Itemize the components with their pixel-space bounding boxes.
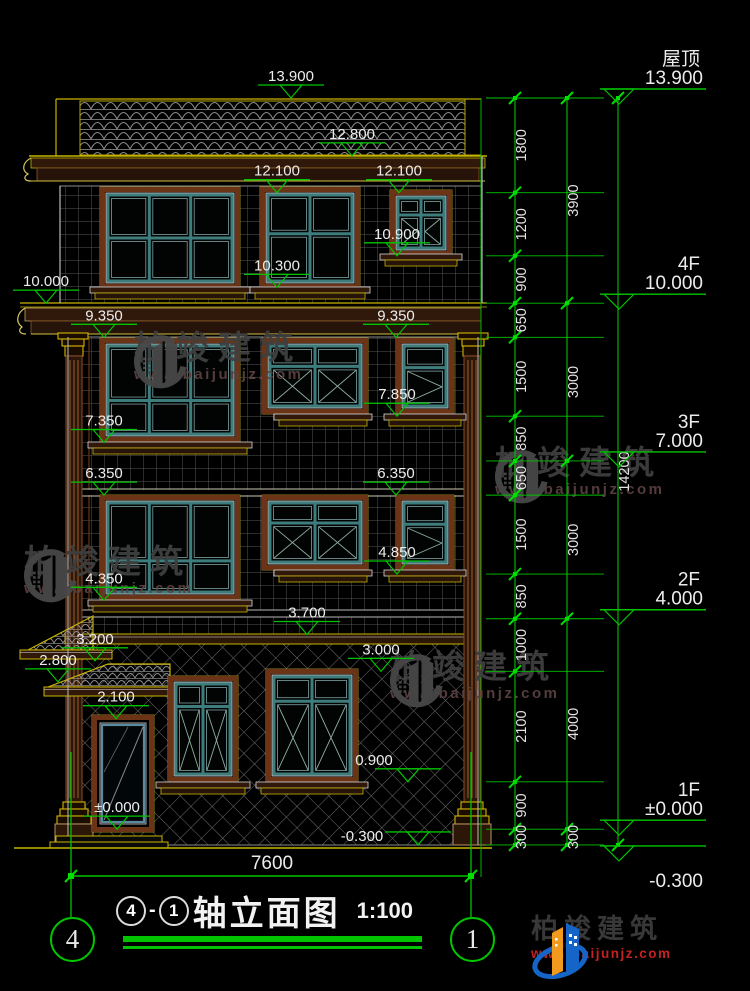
floor-marker: 13.900屋顶	[600, 49, 706, 104]
elevation-triangle-icon	[341, 143, 363, 156]
title-underline-thick	[123, 936, 422, 942]
elevation-triangle-icon	[385, 482, 407, 495]
floor-elevation: 7.000	[655, 431, 703, 452]
level-triangle-icon	[604, 820, 634, 835]
title-dash: -	[149, 899, 156, 922]
extension-lines	[486, 98, 604, 845]
dimension-chain: 3900300030004000300	[561, 92, 582, 851]
title-text: 轴立面图	[193, 886, 341, 935]
elevation-value: 7.850	[378, 386, 416, 403]
floor-elevation: 4.000	[655, 589, 703, 610]
elevation-marker: 12.100	[244, 163, 310, 193]
title-scale: 1:100	[357, 898, 413, 924]
elevation-value: 4.850	[378, 544, 416, 561]
dim-value: 900	[514, 793, 530, 817]
elevation-value: 12.100	[254, 163, 300, 180]
elevation-triangle-icon	[296, 622, 318, 635]
elevation-marker: 6.350	[363, 465, 429, 495]
elevation-triangle-icon	[397, 769, 419, 782]
floor-elevation: -0.300	[649, 871, 703, 892]
dim-value: 300	[514, 825, 530, 849]
dim-value: 300	[566, 825, 582, 849]
level-triangle-icon	[604, 294, 634, 309]
title-axis-circle-start: 4	[116, 896, 146, 926]
elevation-marker: 7.850	[364, 386, 430, 416]
floor-label: 1F	[678, 780, 700, 801]
dim-value: 1800	[514, 129, 530, 161]
elevation-value: -0.300	[341, 828, 384, 845]
elevation-triangle-icon	[106, 816, 128, 829]
cad-elevation-drawing: 柏竣建筑 www.baijunjz.com 柏竣建筑 www.baijunjz.…	[0, 0, 750, 991]
elevation-triangle-icon	[266, 274, 288, 287]
drawing-title: 4 - 1 轴立面图 1:100	[116, 886, 413, 935]
elevation-triangle-icon	[93, 482, 115, 495]
elevation-value: 7.350	[85, 413, 123, 430]
elevation-triangle-icon	[385, 324, 407, 337]
elevation-marker: 12.100	[366, 163, 432, 193]
floor-label: 3F	[678, 412, 700, 433]
elevation-marker: 3.700	[274, 605, 340, 635]
elevation-value: 6.350	[85, 465, 123, 482]
dimension-chain: 1800120090065015008506501500850100021009…	[509, 92, 530, 851]
floor-marker: 10.0004F	[600, 254, 706, 309]
width-dimension: 7600	[65, 853, 477, 882]
floor-elevation: 10.000	[645, 273, 703, 294]
elevation-triangle-icon	[93, 324, 115, 337]
elevation-value: 2.800	[39, 652, 77, 669]
elevation-triangle-icon	[407, 832, 429, 845]
dim-value: 900	[514, 267, 530, 291]
dim-value: 3000	[566, 366, 582, 398]
elevation-marker: 10.300	[244, 257, 310, 287]
elevation-triangle-icon	[93, 430, 115, 443]
elevation-value: 3.700	[288, 605, 326, 622]
company-logo-icon	[531, 916, 591, 984]
elevation-value: 9.350	[85, 307, 123, 324]
elevation-marker: ±0.000	[84, 799, 150, 829]
elevation-marker: 0.900	[355, 752, 441, 782]
company-logo: 柏竣建筑 www.baijunjz.com	[531, 916, 672, 961]
elevation-value: 10.900	[374, 226, 420, 243]
elevation-triangle-icon	[388, 180, 410, 193]
dim-value: 650	[514, 308, 530, 332]
elevation-marker: 3.000	[348, 641, 414, 671]
floor-marker: ±0.0001F	[600, 780, 706, 835]
floor-elevation: 13.900	[645, 68, 703, 89]
dim-value: 14200	[617, 451, 633, 491]
elevation-triangle-icon	[386, 403, 408, 416]
elevation-value: 12.800	[329, 126, 375, 143]
title-underline-thin	[123, 946, 422, 949]
elevation-triangle-icon	[35, 290, 57, 303]
title-axis-circle-end: 1	[159, 896, 189, 926]
width-dim-value: 7600	[251, 853, 293, 874]
floor-label: 4F	[678, 254, 700, 275]
level-triangle-icon	[604, 610, 634, 625]
floor-label: 屋顶	[662, 49, 700, 70]
dim-value: 1200	[514, 208, 530, 240]
level-triangle-icon	[604, 846, 634, 861]
elevation-value: 3.000	[362, 641, 400, 658]
elevation-value: 3.200	[76, 631, 114, 648]
dim-value: 3000	[566, 524, 582, 556]
elevation-triangle-icon	[84, 648, 106, 661]
elevation-marker: 13.900	[258, 68, 324, 98]
elevation-marker: 9.350	[363, 307, 429, 337]
elevation-value: 10.300	[254, 257, 300, 274]
floor-elevation: ±0.000	[645, 799, 703, 820]
dim-value: 850	[514, 584, 530, 608]
elevation-value: 4.350	[85, 570, 123, 587]
dim-value: 2100	[514, 710, 530, 742]
dim-value: 650	[514, 466, 530, 490]
elevation-marker: 10.000	[13, 273, 79, 303]
dim-value: 850	[514, 426, 530, 450]
elevation-value: 13.900	[268, 68, 314, 85]
dim-value: 1500	[514, 518, 530, 550]
dim-value: 3900	[566, 184, 582, 216]
elevation-marker: -0.300	[341, 828, 451, 845]
dim-value: 1500	[514, 361, 530, 393]
floor-marker: 7.0003F	[600, 412, 706, 467]
elevation-marker: 7.350	[71, 413, 137, 443]
floor-marker: -0.300	[600, 846, 706, 892]
elevation-triangle-icon	[280, 85, 302, 98]
dim-value: 1000	[514, 629, 530, 661]
dimension-annotations: 1800120090065015008506501500850100021009…	[0, 0, 750, 991]
axis-bubble-1: 1	[450, 917, 495, 962]
elevation-value: 10.000	[23, 273, 69, 290]
elevation-triangle-icon	[105, 706, 127, 719]
elevation-marker: 4.850	[364, 544, 430, 574]
elevation-value: 9.350	[377, 307, 415, 324]
dimension-chain: 14200	[612, 92, 633, 851]
elevation-value: 6.350	[377, 465, 415, 482]
elevation-triangle-icon	[386, 243, 408, 256]
elevation-marker: 9.350	[71, 307, 137, 337]
elevation-marker: 2.800	[25, 652, 91, 682]
elevation-marker: 2.100	[83, 689, 149, 719]
elevation-value: 2.100	[97, 689, 135, 706]
elevation-value: 12.100	[376, 163, 422, 180]
elevation-triangle-icon	[93, 587, 115, 600]
elevation-triangle-icon	[266, 180, 288, 193]
floor-marker: 4.0002F	[600, 570, 706, 625]
axis-bubble-4: 4	[50, 917, 95, 962]
elevation-marker: 12.800	[319, 126, 385, 156]
elevation-triangle-icon	[386, 561, 408, 574]
elevation-triangle-icon	[47, 669, 69, 682]
elevation-marker: 4.350	[71, 570, 137, 600]
elevation-value: 0.900	[355, 752, 393, 769]
elevation-value: ±0.000	[94, 799, 140, 816]
elevation-marker: 6.350	[71, 465, 137, 495]
elevation-marker: 10.900	[364, 226, 430, 256]
floor-label: 2F	[678, 570, 700, 591]
dim-value: 4000	[566, 708, 582, 740]
elevation-triangle-icon	[370, 658, 392, 671]
